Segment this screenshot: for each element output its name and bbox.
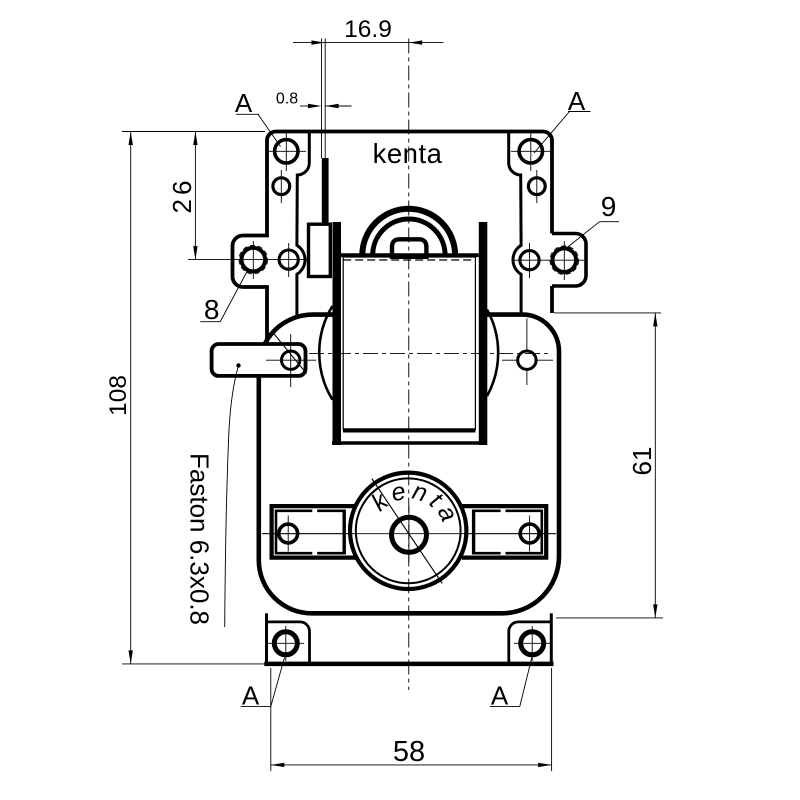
svg-text:Faston 6.3x0.8: Faston 6.3x0.8 (185, 453, 215, 625)
svg-text:58: 58 (393, 736, 425, 768)
svg-text:kenta: kenta (373, 138, 443, 169)
svg-text:26: 26 (167, 177, 197, 214)
svg-text:108: 108 (105, 375, 132, 416)
svg-text:61: 61 (627, 447, 657, 476)
svg-text:8: 8 (204, 294, 220, 325)
svg-text:A: A (235, 88, 253, 118)
svg-text:9: 9 (601, 191, 617, 222)
svg-text:16.9: 16.9 (344, 16, 392, 43)
svg-text:0.8: 0.8 (276, 91, 298, 108)
